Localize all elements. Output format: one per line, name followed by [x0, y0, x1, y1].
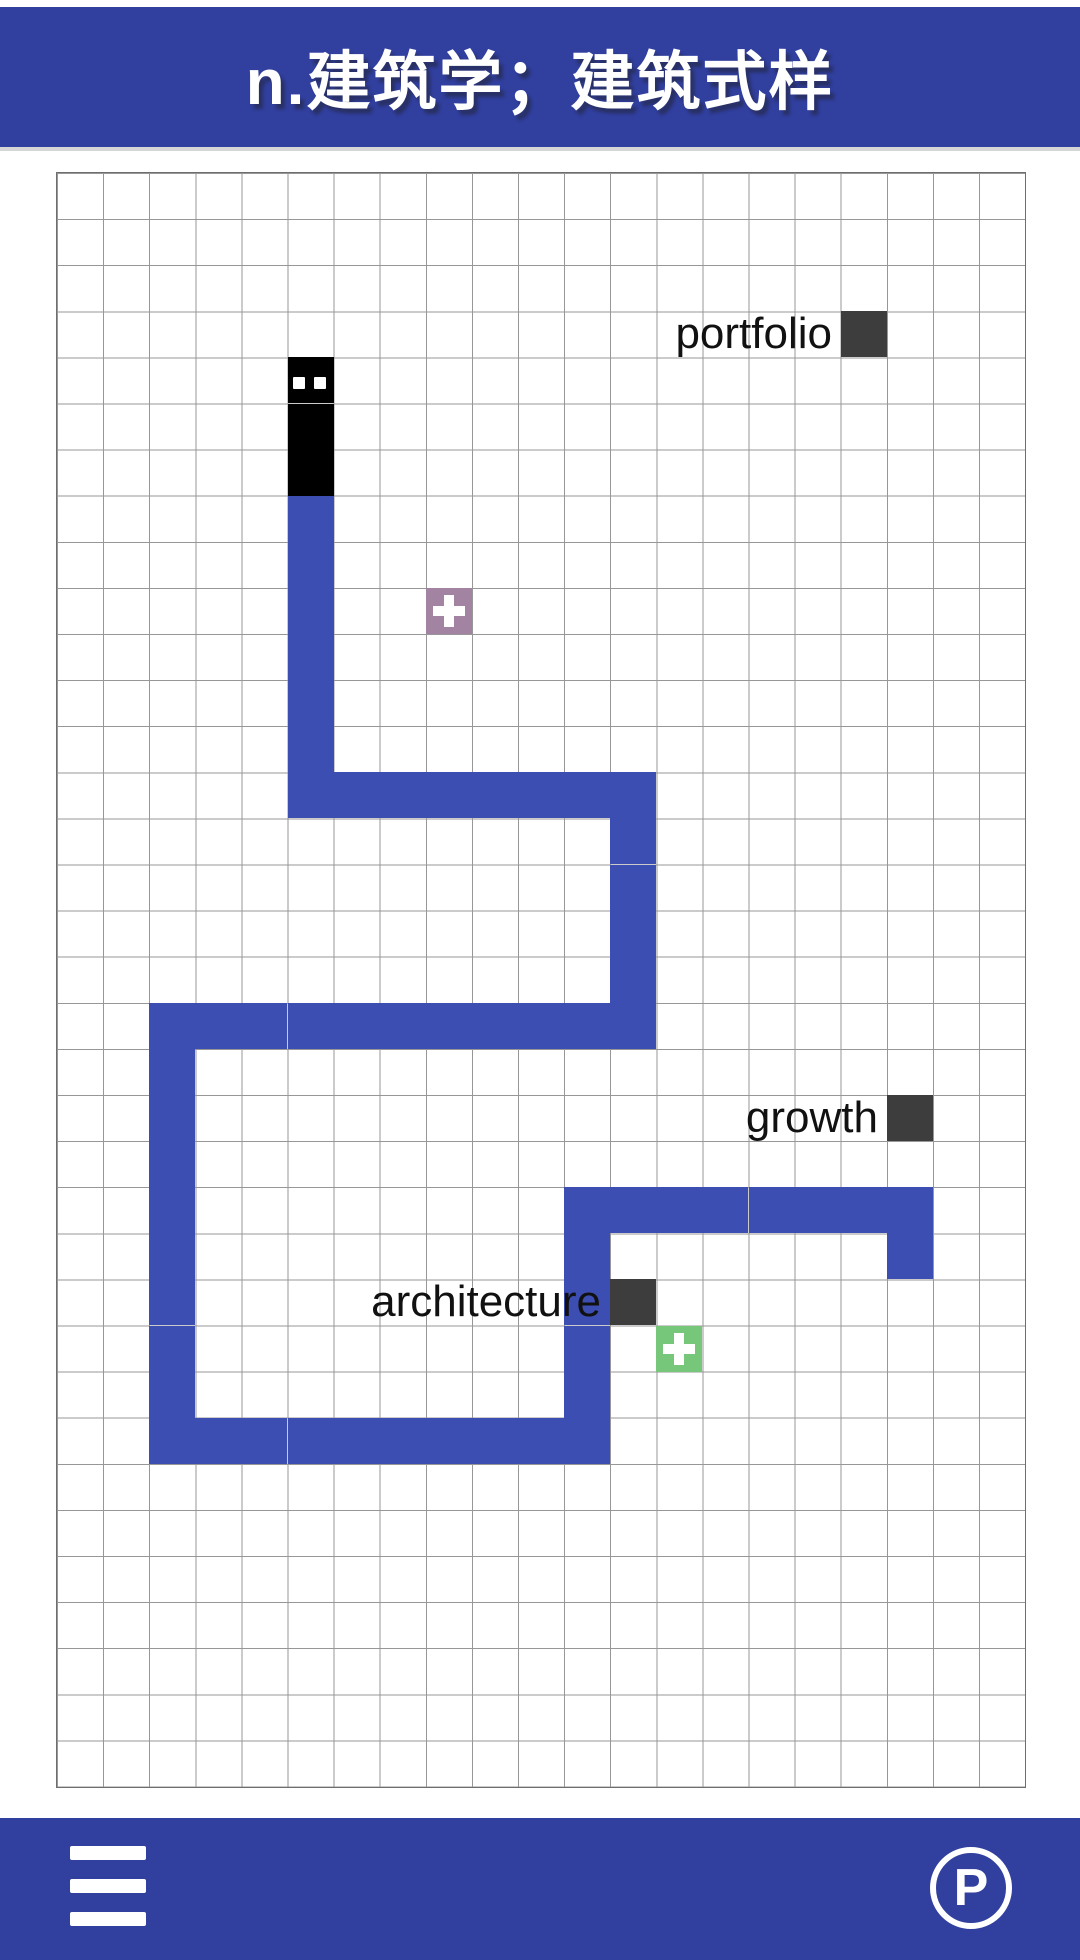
snake-body-cell — [564, 1372, 610, 1418]
snake-body-cell — [426, 1418, 472, 1464]
snake-body-cell — [472, 1003, 518, 1049]
snake-body-cell — [288, 680, 334, 726]
snake-body-cell — [334, 1418, 380, 1464]
snake-body-cell — [841, 1187, 887, 1233]
snake-body-cell — [334, 772, 380, 818]
snake-body-cell — [610, 865, 656, 911]
snake-body-cell — [472, 1418, 518, 1464]
snake-body-cell — [380, 1418, 426, 1464]
snake-body-cell — [380, 772, 426, 818]
snake-body-cell — [518, 1418, 564, 1464]
app-screen: n.建筑学；建筑式样 portfoliogrowtharchitecture [… — [0, 0, 1080, 1960]
snake-body-cell — [610, 1187, 656, 1233]
hamburger-icon — [70, 1846, 146, 1860]
snake-body-cell — [702, 1187, 748, 1233]
plus-icon — [433, 606, 465, 616]
snake-body-cell — [887, 1233, 933, 1279]
snake-body-cell — [472, 772, 518, 818]
snake-body-cell — [749, 1187, 795, 1233]
snake-body-cell — [149, 1279, 195, 1325]
snake-body-cell — [149, 1095, 195, 1141]
snake-body-cell — [149, 1372, 195, 1418]
snake-body-cell — [656, 1187, 702, 1233]
snake-eye-icon — [293, 377, 305, 389]
snake-body-cell — [610, 772, 656, 818]
snake-body-cell — [288, 1003, 334, 1049]
target-cell — [887, 1095, 933, 1141]
snake-body-cell — [288, 1418, 334, 1464]
snake-body-cell — [241, 1003, 287, 1049]
snake-body-cell — [334, 1003, 380, 1049]
snake-body-cell — [195, 1003, 241, 1049]
profile-button[interactable]: P — [930, 1847, 1012, 1929]
snake-body-cell — [610, 957, 656, 1003]
snake-body-cell — [288, 772, 334, 818]
snake-body-cell — [149, 1233, 195, 1279]
game-board[interactable]: portfoliogrowtharchitecture — [56, 172, 1026, 1788]
snake-body-cell — [149, 1187, 195, 1233]
powerup-plus-cell — [426, 588, 472, 634]
snake-body-cell — [149, 1418, 195, 1464]
snake-body-cell — [149, 1141, 195, 1187]
snake-body-cell — [288, 496, 334, 542]
snake-body-cell — [518, 772, 564, 818]
snake-body-cell — [610, 911, 656, 957]
snake-body-cell — [426, 772, 472, 818]
snake-head — [288, 357, 334, 403]
footer-bar: [ 58/108 ] — [0, 1818, 1080, 1960]
snake-body-cell — [564, 772, 610, 818]
word-label-growth: growth — [746, 1093, 878, 1143]
snake-body-cell — [610, 818, 656, 864]
snake-body-cell — [426, 1003, 472, 1049]
snake-body-cell — [149, 1326, 195, 1372]
snake-body-cell — [564, 1418, 610, 1464]
snake-body-cell — [564, 1003, 610, 1049]
snake-body-cell — [564, 1187, 610, 1233]
plus-icon — [663, 1344, 695, 1354]
snake-body-cell — [380, 1003, 426, 1049]
snake-body-cell — [288, 542, 334, 588]
menu-button[interactable] — [70, 1846, 146, 1926]
snake-body-cell — [795, 1187, 841, 1233]
page-title: n.建筑学；建筑式样 — [246, 31, 835, 123]
snake-body-cell — [564, 1233, 610, 1279]
word-label-architecture: architecture — [371, 1277, 601, 1327]
snake-body-cell — [149, 1003, 195, 1049]
snake-body-cell — [288, 726, 334, 772]
snake-body-cell — [149, 1049, 195, 1095]
snake-body-cell — [195, 1418, 241, 1464]
header-bar: n.建筑学；建筑式样 — [0, 7, 1080, 151]
target-cell — [841, 311, 887, 357]
snake-head — [288, 450, 334, 496]
snake-body-cell — [241, 1418, 287, 1464]
powerup-plus-cell — [656, 1326, 702, 1372]
profile-p-label: P — [954, 1862, 989, 1914]
snake-body-cell — [288, 634, 334, 680]
snake-body-cell — [518, 1003, 564, 1049]
snake-body-cell — [610, 1003, 656, 1049]
snake-body-cell — [288, 588, 334, 634]
snake-head — [288, 404, 334, 450]
snake-eye-icon — [314, 377, 326, 389]
target-cell — [610, 1279, 656, 1325]
snake-body-cell — [887, 1187, 933, 1233]
word-label-portfolio: portfolio — [675, 309, 832, 359]
snake-body-cell — [564, 1326, 610, 1372]
